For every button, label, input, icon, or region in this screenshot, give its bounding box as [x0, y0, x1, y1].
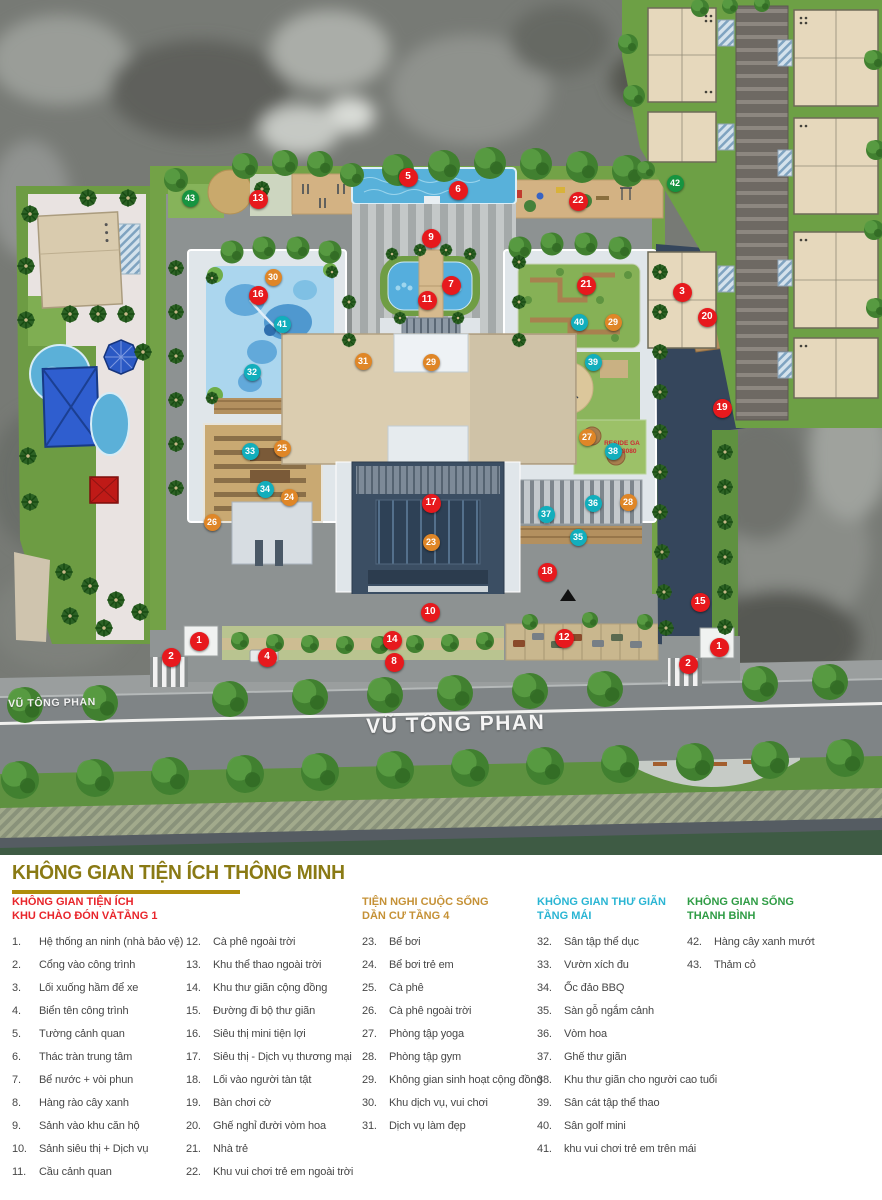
- plan-marker-31-25: 31: [355, 353, 372, 370]
- legend-item-36: 36.Vòm hoa: [537, 1027, 687, 1041]
- legend-column-3: TIỆN NGHI CUỘC SỐNGDẦN CƯ TẦNG 423.Bể bơ…: [362, 895, 536, 1142]
- plan-marker-23-31: 23: [423, 534, 440, 551]
- legend-item-8: 8.Hàng rào cây xanh: [12, 1096, 184, 1110]
- plan-marker-40-38: 40: [571, 314, 588, 331]
- plan-marker-5-11: 5: [399, 168, 418, 187]
- plan-marker-38-40: 38: [605, 443, 622, 460]
- plan-marker-25-28: 25: [274, 440, 291, 457]
- plan-marker-14-4: 14: [383, 631, 402, 650]
- plan-marker-16-9: 16: [249, 286, 268, 305]
- legend-column-header: [186, 895, 362, 929]
- legend-item-9: 9.Sảnh vào khu căn hộ: [12, 1119, 184, 1133]
- legend-item-41: 41.khu vui chơi trẻ em trên mái: [537, 1142, 687, 1156]
- plan-marker-17-8: 17: [422, 494, 441, 513]
- legend-item-39: 39.Sân cát tập thể thao: [537, 1096, 687, 1110]
- plan-marker-43-45: 43: [182, 190, 199, 207]
- legend-item-26: 26.Cà phê ngoài trời: [362, 1004, 536, 1018]
- plan-marker-15-21: 15: [691, 593, 710, 612]
- legend-item-18: 18.Lối vào người tàn tật: [186, 1073, 362, 1087]
- legend-column-4: KHÔNG GIAN THƯ GIÃNTẦNG MÁI32.Sân tập th…: [537, 895, 687, 1165]
- plan-marker-10-6: 10: [421, 603, 440, 622]
- plan-marker-29-26: 29: [423, 354, 440, 371]
- legend-item-13: 13.Khu thể thao ngoài trời: [186, 958, 362, 972]
- legend-column-header: KHÔNG GIAN SỐNGTHANH BÌNH: [687, 895, 877, 929]
- plan-marker-21-16: 21: [577, 276, 596, 295]
- legend-item-5: 5.Tường cảnh quan: [12, 1027, 184, 1041]
- legend-item-28: 28.Phòng tập gym: [362, 1050, 536, 1064]
- plan-marker-36-42: 36: [585, 495, 602, 512]
- plan-marker-2-1: 2: [162, 648, 181, 667]
- page: VŨ TÔNG PHAN VŨ TÔNG PHAN RESIDE GA 0633…: [0, 0, 882, 1200]
- legend-column-5: KHÔNG GIAN SỐNGTHANH BÌNH42.Hàng cây xan…: [687, 895, 877, 981]
- legend-title-underline: [12, 890, 240, 894]
- plan-marker-29-27: 29: [605, 314, 622, 331]
- plan-marker-18-7: 18: [538, 563, 557, 582]
- plan-marker-3-18: 3: [673, 283, 692, 302]
- plan-marker-26-30: 26: [204, 514, 221, 531]
- legend-item-37: 37.Ghế thư giãn: [537, 1050, 687, 1064]
- legend-item-15: 15.Đường đi bộ thư giãn: [186, 1004, 362, 1018]
- legend-item-29: 29.Không gian sinh hoạt cộng đồng: [362, 1073, 536, 1087]
- site-plan: VŨ TÔNG PHAN VŨ TÔNG PHAN RESIDE GA 0633…: [0, 0, 882, 855]
- legend-item-20: 20.Ghế nghỉ đười vòm hoa: [186, 1119, 362, 1133]
- legend-item-43: 43.Thảm cỏ: [687, 958, 877, 972]
- plan-marker-22-17: 22: [569, 192, 588, 211]
- legend-item-17: 17.Siêu thị - Dịch vụ thương mại: [186, 1050, 362, 1064]
- legend-item-23: 23.Bể bơi: [362, 935, 536, 949]
- plan-markers-layer: 1248141210181716135697112122320191512303…: [0, 0, 882, 855]
- plan-marker-9-13: 9: [422, 229, 441, 248]
- legend-item-34: 34.Ốc đảo BBQ: [537, 981, 687, 995]
- legend-column-header: KHÔNG GIAN TIỆN ÍCHKHU CHÀO ĐÓN VÀTẦNG 1: [12, 895, 184, 929]
- legend-item-30: 30.Khu dịch vụ, vui chơi: [362, 1096, 536, 1110]
- legend-item-25: 25.Cà phê: [362, 981, 536, 995]
- plan-marker-12-5: 12: [555, 629, 574, 648]
- legend-title: KHÔNG GIAN TIỆN ÍCH THÔNG MINH: [12, 862, 345, 885]
- legend-item-42: 42.Hàng cây xanh mướt: [687, 935, 877, 949]
- legend-item-21: 21.Nhà trẻ: [186, 1142, 362, 1156]
- legend-item-16: 16.Siêu thị mini tiện lợi: [186, 1027, 362, 1041]
- plan-marker-13-10: 13: [249, 190, 268, 209]
- plan-marker-1-0: 1: [190, 632, 209, 651]
- plan-marker-28-33: 28: [620, 494, 637, 511]
- plan-marker-7-14: 7: [442, 276, 461, 295]
- plan-marker-4-2: 4: [258, 648, 277, 667]
- legend-item-35: 35.Sàn gỗ ngắm cảnh: [537, 1004, 687, 1018]
- legend-column-header: TIỆN NGHI CUỘC SỐNGDẦN CƯ TẦNG 4: [362, 895, 536, 929]
- plan-marker-37-41: 37: [538, 506, 555, 523]
- legend-item-27: 27.Phòng tập yoga: [362, 1027, 536, 1041]
- legend-item-31: 31.Dịch vụ làm đẹp: [362, 1119, 536, 1133]
- legend-item-10: 10.Sảnh siêu thị + Dịch vụ: [12, 1142, 184, 1156]
- legend-column-2: 12.Cà phê ngoài trời13.Khu thể thao ngoà…: [186, 895, 362, 1188]
- legend-item-11: 11.Cầu cảnh quan: [12, 1165, 184, 1179]
- plan-marker-35-43: 35: [570, 529, 587, 546]
- plan-marker-34-37: 34: [257, 481, 274, 498]
- plan-marker-24-29: 24: [281, 489, 298, 506]
- plan-marker-2-23: 2: [679, 655, 698, 674]
- legend-item-24: 24.Bể bơi trẻ em: [362, 958, 536, 972]
- legend-item-14: 14.Khu thư giãn cộng đồng: [186, 981, 362, 995]
- plan-marker-42-44: 42: [667, 175, 684, 192]
- legend-item-32: 32.Sân tập thể dục: [537, 935, 687, 949]
- legend-item-38: 38.Khu thư giãn cho người cao tuổi: [537, 1073, 687, 1087]
- legend-item-22: 22.Khu vui chơi trẻ em ngoài trời: [186, 1165, 362, 1179]
- plan-marker-41-34: 41: [274, 316, 291, 333]
- legend-item-19: 19.Bàn chơi cờ: [186, 1096, 362, 1110]
- plan-marker-33-36: 33: [242, 443, 259, 460]
- plan-marker-20-19: 20: [698, 308, 717, 327]
- legend-panel: KHÔNG GIAN TIỆN ÍCH THÔNG MINH KHÔNG GIA…: [0, 855, 882, 1200]
- plan-marker-32-35: 32: [244, 364, 261, 381]
- plan-marker-6-12: 6: [449, 181, 468, 200]
- plan-marker-1-22: 1: [710, 638, 729, 657]
- plan-marker-30-24: 30: [265, 269, 282, 286]
- legend-column-header: KHÔNG GIAN THƯ GIÃNTẦNG MÁI: [537, 895, 687, 929]
- legend-item-33: 33.Vườn xích đu: [537, 958, 687, 972]
- legend-item-40: 40.Sân golf mini: [537, 1119, 687, 1133]
- plan-marker-27-32: 27: [579, 429, 596, 446]
- plan-marker-11-15: 11: [418, 291, 437, 310]
- legend-item-7: 7.Bể nước + vòi phun: [12, 1073, 184, 1087]
- legend-item-2: 2.Cổng vào công trình: [12, 958, 184, 972]
- legend-item-4: 4.Biển tên công trình: [12, 1004, 184, 1018]
- legend-item-3: 3.Lối xuống hầm để xe: [12, 981, 184, 995]
- plan-marker-19-20: 19: [713, 399, 732, 418]
- plan-marker-8-3: 8: [385, 653, 404, 672]
- legend-column-1: KHÔNG GIAN TIỆN ÍCHKHU CHÀO ĐÓN VÀTẦNG 1…: [12, 895, 184, 1188]
- legend-item-6: 6.Thác tràn trung tâm: [12, 1050, 184, 1064]
- legend-item-1: 1.Hệ thống an ninh (nhà bảo vệ): [12, 935, 184, 949]
- legend-item-12: 12.Cà phê ngoài trời: [186, 935, 362, 949]
- plan-marker-39-39: 39: [585, 354, 602, 371]
